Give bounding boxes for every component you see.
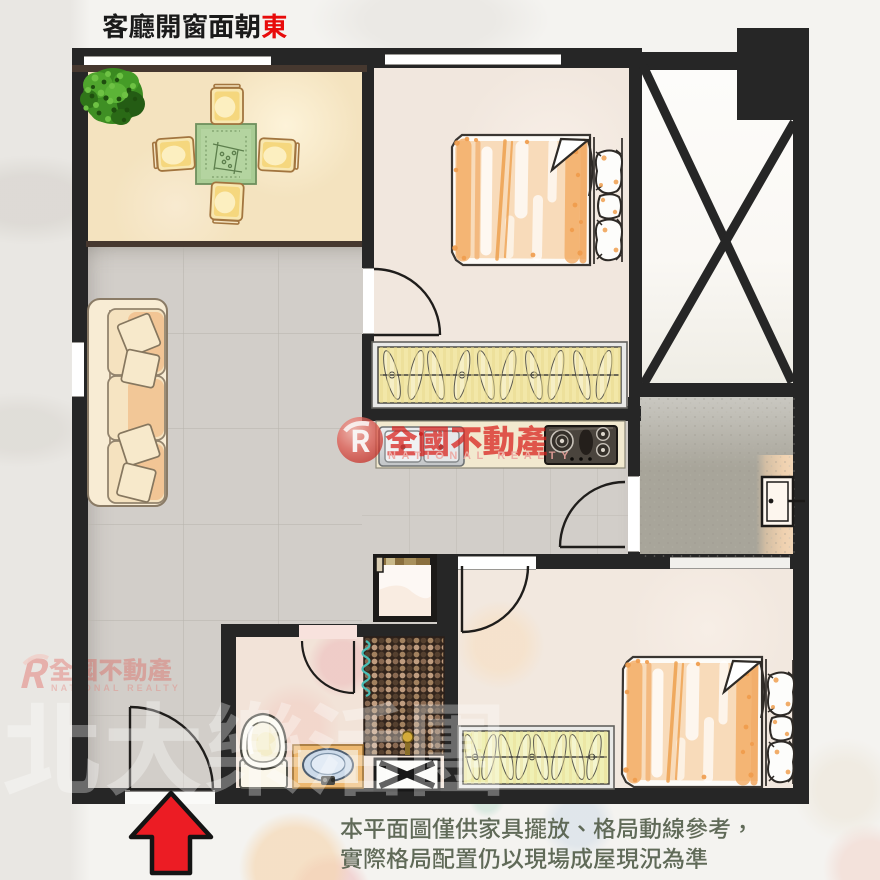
svg-text:NATIONAL REALTY: NATIONAL REALTY xyxy=(388,450,574,462)
